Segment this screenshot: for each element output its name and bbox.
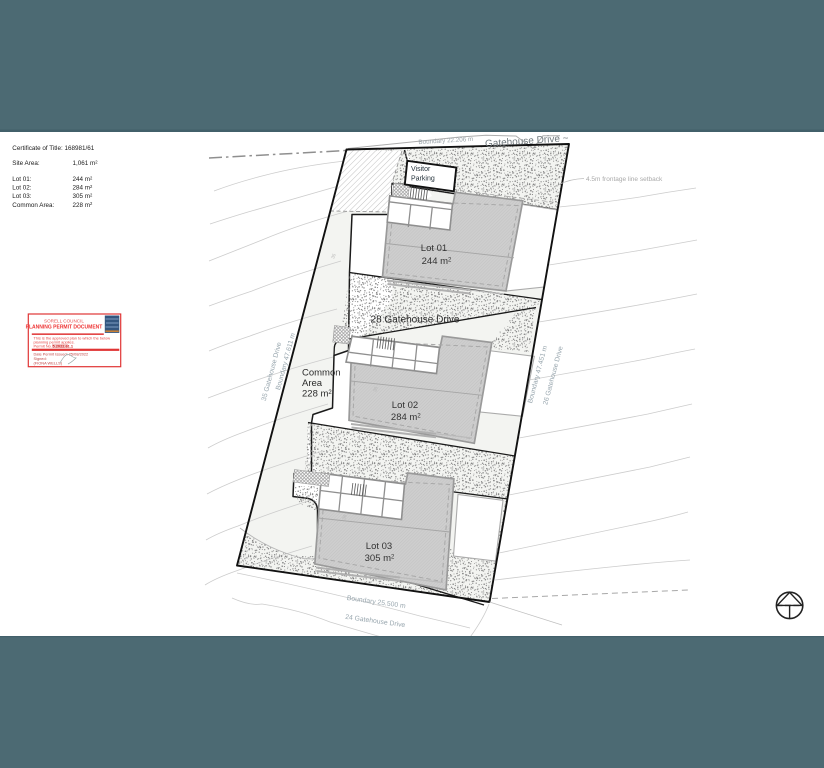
svg-text:Lot 02:: Lot 02: [12, 185, 32, 192]
svg-text:Lot 01:: Lot 01: [12, 176, 32, 183]
svg-text:28 Gatehouse Drive: 28 Gatehouse Drive [371, 315, 460, 326]
svg-text:244 m2: 244 m2 [422, 256, 452, 267]
svg-text:Parking: Parking [411, 176, 435, 183]
svg-text:Common: Common [302, 368, 341, 379]
svg-text:Area: Area [302, 378, 323, 389]
svg-text:Site Area:: Site Area: [12, 160, 40, 167]
svg-text:SORELL COUNCIL: SORELL COUNCIL [44, 319, 84, 324]
svg-text:228 m2: 228 m2 [73, 201, 94, 209]
svg-text:Common Area:: Common Area: [12, 202, 54, 209]
svg-text:Lot 02: Lot 02 [392, 400, 418, 411]
svg-text:1,061 m2: 1,061 m2 [73, 159, 99, 167]
svg-text:4.5m frontage line setback: 4.5m frontage line setback [586, 176, 663, 183]
svg-text:Lot 01: Lot 01 [421, 243, 447, 254]
svg-text:244 m2: 244 m2 [73, 175, 94, 183]
svg-text:Visitor: Visitor [411, 166, 431, 173]
svg-text:Permit No.: Permit No. [34, 343, 52, 348]
svg-text:284 m2: 284 m2 [73, 184, 94, 192]
svg-text:228 m2: 228 m2 [302, 389, 332, 400]
svg-text:Lot 03: Lot 03 [366, 541, 392, 552]
svg-text:305 m2: 305 m2 [365, 553, 395, 564]
svg-text:284 m2: 284 m2 [391, 412, 421, 423]
svg-text:PLANNING PERMIT DOCUMENT: PLANNING PERMIT DOCUMENT [26, 325, 103, 331]
svg-text:(FIONA WELLS): (FIONA WELLS) [34, 360, 63, 365]
svg-text:5.2022.61.1: 5.2022.61.1 [53, 343, 74, 348]
svg-text:Certificate of Title: 168981/6: Certificate of Title: 168981/61 [12, 145, 94, 152]
svg-text:Lot 03:: Lot 03: [12, 193, 32, 200]
svg-text:305 m2: 305 m2 [73, 193, 94, 201]
